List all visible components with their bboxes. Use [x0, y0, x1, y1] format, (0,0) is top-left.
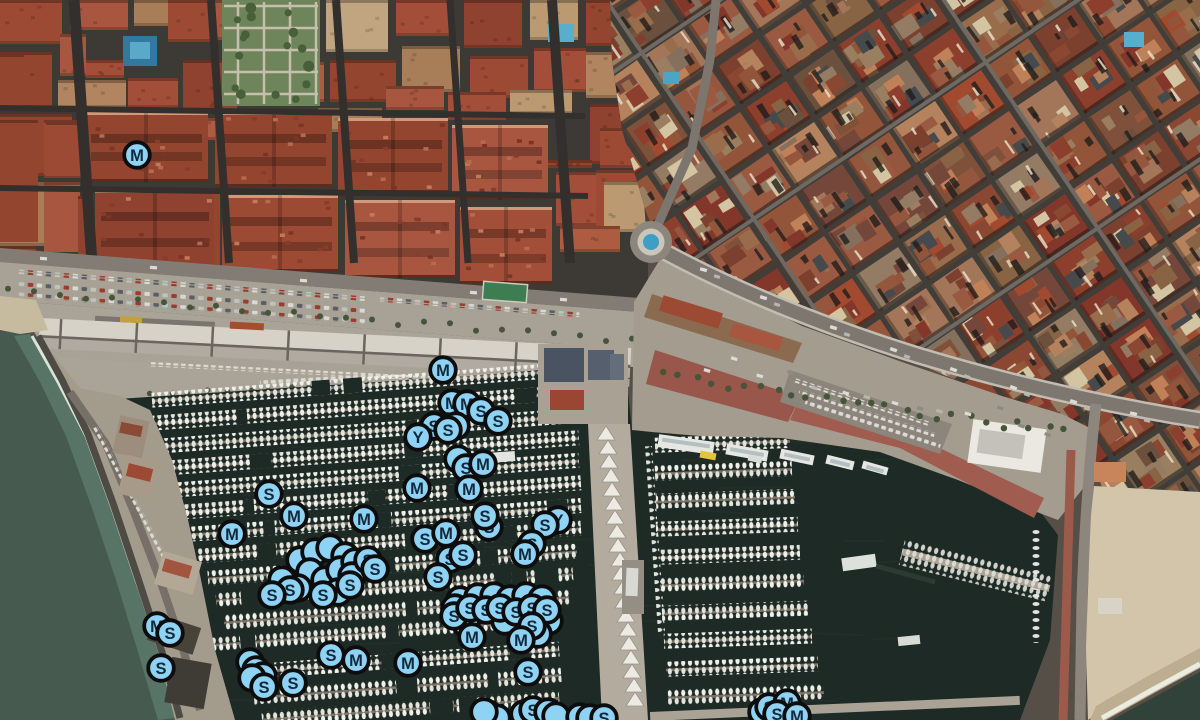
svg-text:S: S [479, 508, 490, 526]
svg-text:M: M [410, 480, 424, 498]
svg-text:M: M [130, 147, 144, 165]
svg-text:S: S [442, 422, 453, 440]
svg-text:S: S [369, 561, 380, 579]
svg-text:S: S [317, 587, 328, 605]
svg-text:M: M [514, 632, 528, 650]
svg-text:M: M [401, 655, 415, 673]
svg-text:S: S [771, 706, 782, 720]
svg-text:M: M [357, 511, 371, 529]
svg-text:S: S [539, 517, 550, 535]
svg-text:S: S [325, 647, 336, 665]
svg-text:M: M [349, 652, 363, 670]
svg-text:M: M [476, 456, 490, 474]
svg-text:M: M [465, 629, 479, 647]
svg-text:S: S [598, 710, 609, 720]
svg-text:S: S [266, 587, 277, 605]
svg-text:S: S [164, 625, 175, 643]
svg-text:S: S [263, 486, 274, 504]
svg-text:S: S [492, 413, 503, 431]
svg-text:M: M [790, 708, 804, 720]
svg-text:Y: Y [412, 429, 423, 447]
svg-text:S: S [155, 660, 166, 678]
svg-text:M: M [518, 546, 532, 564]
svg-text:S: S [522, 664, 533, 682]
svg-text:S: S [419, 531, 430, 549]
svg-text:M: M [436, 362, 450, 380]
svg-text:S: S [287, 675, 298, 693]
svg-text:S: S [258, 679, 269, 697]
svg-text:S: S [432, 569, 443, 587]
svg-text:S: S [344, 577, 355, 595]
svg-text:M: M [225, 526, 239, 544]
svg-text:M: M [462, 481, 476, 499]
svg-text:M: M [439, 525, 453, 543]
svg-text:S: S [457, 547, 468, 565]
svg-text:M: M [287, 508, 301, 526]
